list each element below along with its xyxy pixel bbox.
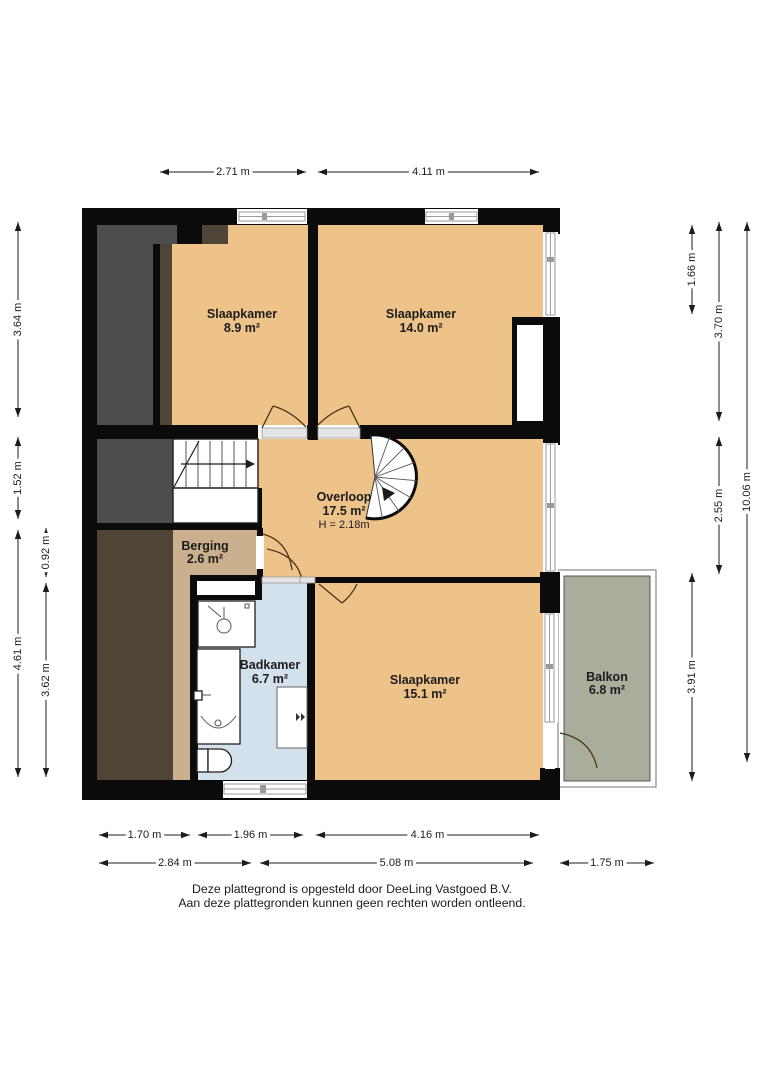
window-right-3	[543, 613, 558, 723]
staircase	[173, 439, 258, 523]
dimension-arrow	[99, 860, 108, 866]
label-overloop-area: 17.5 m²	[322, 504, 365, 518]
dimension-label: 1.75 m	[590, 857, 624, 869]
dimension-arrow	[198, 832, 207, 838]
roof-gray-upper	[97, 244, 153, 425]
dimension-arrow	[744, 753, 750, 762]
roof-brown-lower	[97, 530, 173, 782]
dimension-arrow	[716, 437, 722, 446]
window-right-1	[543, 232, 558, 317]
dimension-label: 4.11 m	[412, 166, 445, 178]
berging-tan-strip	[173, 577, 190, 783]
footer-line-1: Deze plattegrond is opgesteld door DeeLi…	[192, 882, 512, 896]
dimension-arrow	[716, 565, 722, 574]
dimension-label: 2.84 m	[158, 857, 192, 869]
label-balkon-area: 6.8 m²	[589, 683, 625, 697]
wall-berging-top	[97, 523, 262, 530]
dimension-arrow	[15, 530, 21, 539]
dimension-arrow	[689, 573, 695, 582]
dimension-arrow	[99, 832, 108, 838]
label-overloop-height: H = 2.18m	[318, 519, 369, 531]
label-slaapkamer-3: Slaapkamer	[390, 673, 460, 687]
dimension-arrow	[260, 860, 269, 866]
label-badkamer-area: 6.7 m²	[252, 672, 288, 686]
closet-block	[512, 317, 560, 432]
roof-black-chunk	[177, 225, 202, 244]
footer-line-2: Aan deze plattegronden kunnen geen recht…	[178, 896, 525, 910]
window-top-1	[237, 209, 307, 224]
dimension-arrow	[43, 768, 49, 777]
dimension-arrow	[530, 832, 539, 838]
closet-inner	[517, 325, 543, 421]
label-slaapkamer-1-area: 8.9 m²	[224, 321, 260, 335]
dimension-arrow	[294, 832, 303, 838]
dimension-label: 2.71 m	[216, 166, 250, 178]
roof-black-strip	[153, 244, 160, 425]
dimension-arrow	[318, 169, 327, 175]
label-berging-area: 2.6 m²	[187, 552, 223, 566]
dimension-arrow	[15, 222, 21, 231]
dimension-arrow	[15, 408, 21, 417]
window-bath-bottom	[223, 781, 307, 798]
dimension-label: 0.92 m	[40, 536, 52, 570]
cabinet	[277, 687, 307, 748]
floorplan-canvas: Slaapkamer 8.9 m² Slaapkamer 14.0 m² Ove…	[0, 0, 764, 1080]
dimension-label: 5.08 m	[380, 857, 414, 869]
dimension-arrow	[530, 169, 539, 175]
label-slaapkamer-3-area: 15.1 m²	[403, 687, 446, 701]
roof-gray-top	[97, 225, 177, 244]
wall-overloop-top-left	[82, 425, 258, 439]
wall-top	[82, 208, 560, 225]
label-badkamer: Badkamer	[240, 658, 301, 672]
wall-right-bottom	[540, 768, 560, 800]
dimension-label: 4.16 m	[411, 829, 445, 841]
dimension-arrow	[716, 412, 722, 421]
dimension-arrow	[645, 860, 654, 866]
label-slaapkamer-2: Slaapkamer	[386, 307, 456, 321]
bath-niche-inset	[197, 581, 255, 595]
dimension-label: 10.06 m	[741, 472, 753, 512]
bathtub	[194, 649, 240, 744]
dimension-arrow	[524, 860, 533, 866]
wall-left	[82, 208, 97, 800]
door-gap-berging	[256, 536, 264, 569]
roof-brown-chunk	[202, 225, 228, 244]
door-threshold-slaapkamer-2	[318, 428, 360, 438]
dimension-label: 3.62 m	[40, 663, 52, 697]
label-slaapkamer-1: Slaapkamer	[207, 307, 277, 321]
label-balkon: Balkon	[586, 670, 628, 684]
roof-brown-strip	[160, 244, 172, 425]
wall-berging-door-stub-top	[257, 528, 263, 536]
floorplan-page: Slaapkamer 8.9 m² Slaapkamer 14.0 m² Ove…	[0, 0, 764, 1080]
wall-right-top	[543, 208, 560, 234]
dimension-arrow	[15, 437, 21, 446]
dimension-arrow	[15, 510, 21, 519]
dimension-arrow	[316, 832, 325, 838]
wall-bedroom-divider	[308, 210, 318, 440]
label-berging: Berging	[181, 539, 228, 553]
dimension-label: 1.96 m	[234, 829, 268, 841]
dimension-arrow	[43, 583, 49, 592]
door-threshold-slaapkamer-3	[300, 577, 315, 583]
dimension-arrow	[181, 832, 190, 838]
dimension-label: 3.64 m	[12, 303, 24, 337]
door-threshold-slaapkamer-1	[262, 428, 307, 438]
dimension-arrow	[689, 225, 695, 234]
dimension-label: 1.52 m	[12, 461, 24, 495]
dimension-arrow	[689, 772, 695, 781]
dimension-label: 1.70 m	[128, 829, 162, 841]
dimension-arrow	[242, 860, 251, 866]
dimension-arrow	[297, 169, 306, 175]
dimension-arrow	[43, 528, 49, 537]
dimension-arrow	[15, 768, 21, 777]
wall-right-mid	[543, 430, 560, 445]
label-overloop: Overloop	[317, 490, 372, 504]
dimension-label: 3.91 m	[686, 660, 698, 694]
dimension-arrow	[560, 860, 569, 866]
dimension-arrow	[744, 222, 750, 231]
door-gap-balkon	[545, 723, 555, 769]
wall-overloop-bottom	[313, 577, 543, 583]
dimension-arrow	[689, 305, 695, 314]
dimension-arrow	[716, 222, 722, 231]
sink	[198, 601, 255, 647]
dimension-label: 1.66 m	[686, 253, 698, 287]
footer: Deze plattegrond is opgesteld door DeeLi…	[178, 882, 525, 910]
toilet	[197, 749, 232, 772]
window-top-2	[425, 209, 478, 224]
door-threshold-badkamer	[262, 577, 300, 583]
dimension-arrow	[160, 169, 169, 175]
wall-bottom	[82, 780, 560, 800]
dimension-label: 2.55 m	[713, 489, 725, 523]
roof-gray-middle	[97, 437, 173, 523]
wall-bath-bedroom	[307, 583, 315, 783]
window-right-2	[543, 443, 558, 572]
dimension-label: 3.70 m	[713, 305, 725, 339]
dimension-label: 4.61 m	[12, 637, 24, 671]
label-slaapkamer-2-area: 14.0 m²	[399, 321, 442, 335]
